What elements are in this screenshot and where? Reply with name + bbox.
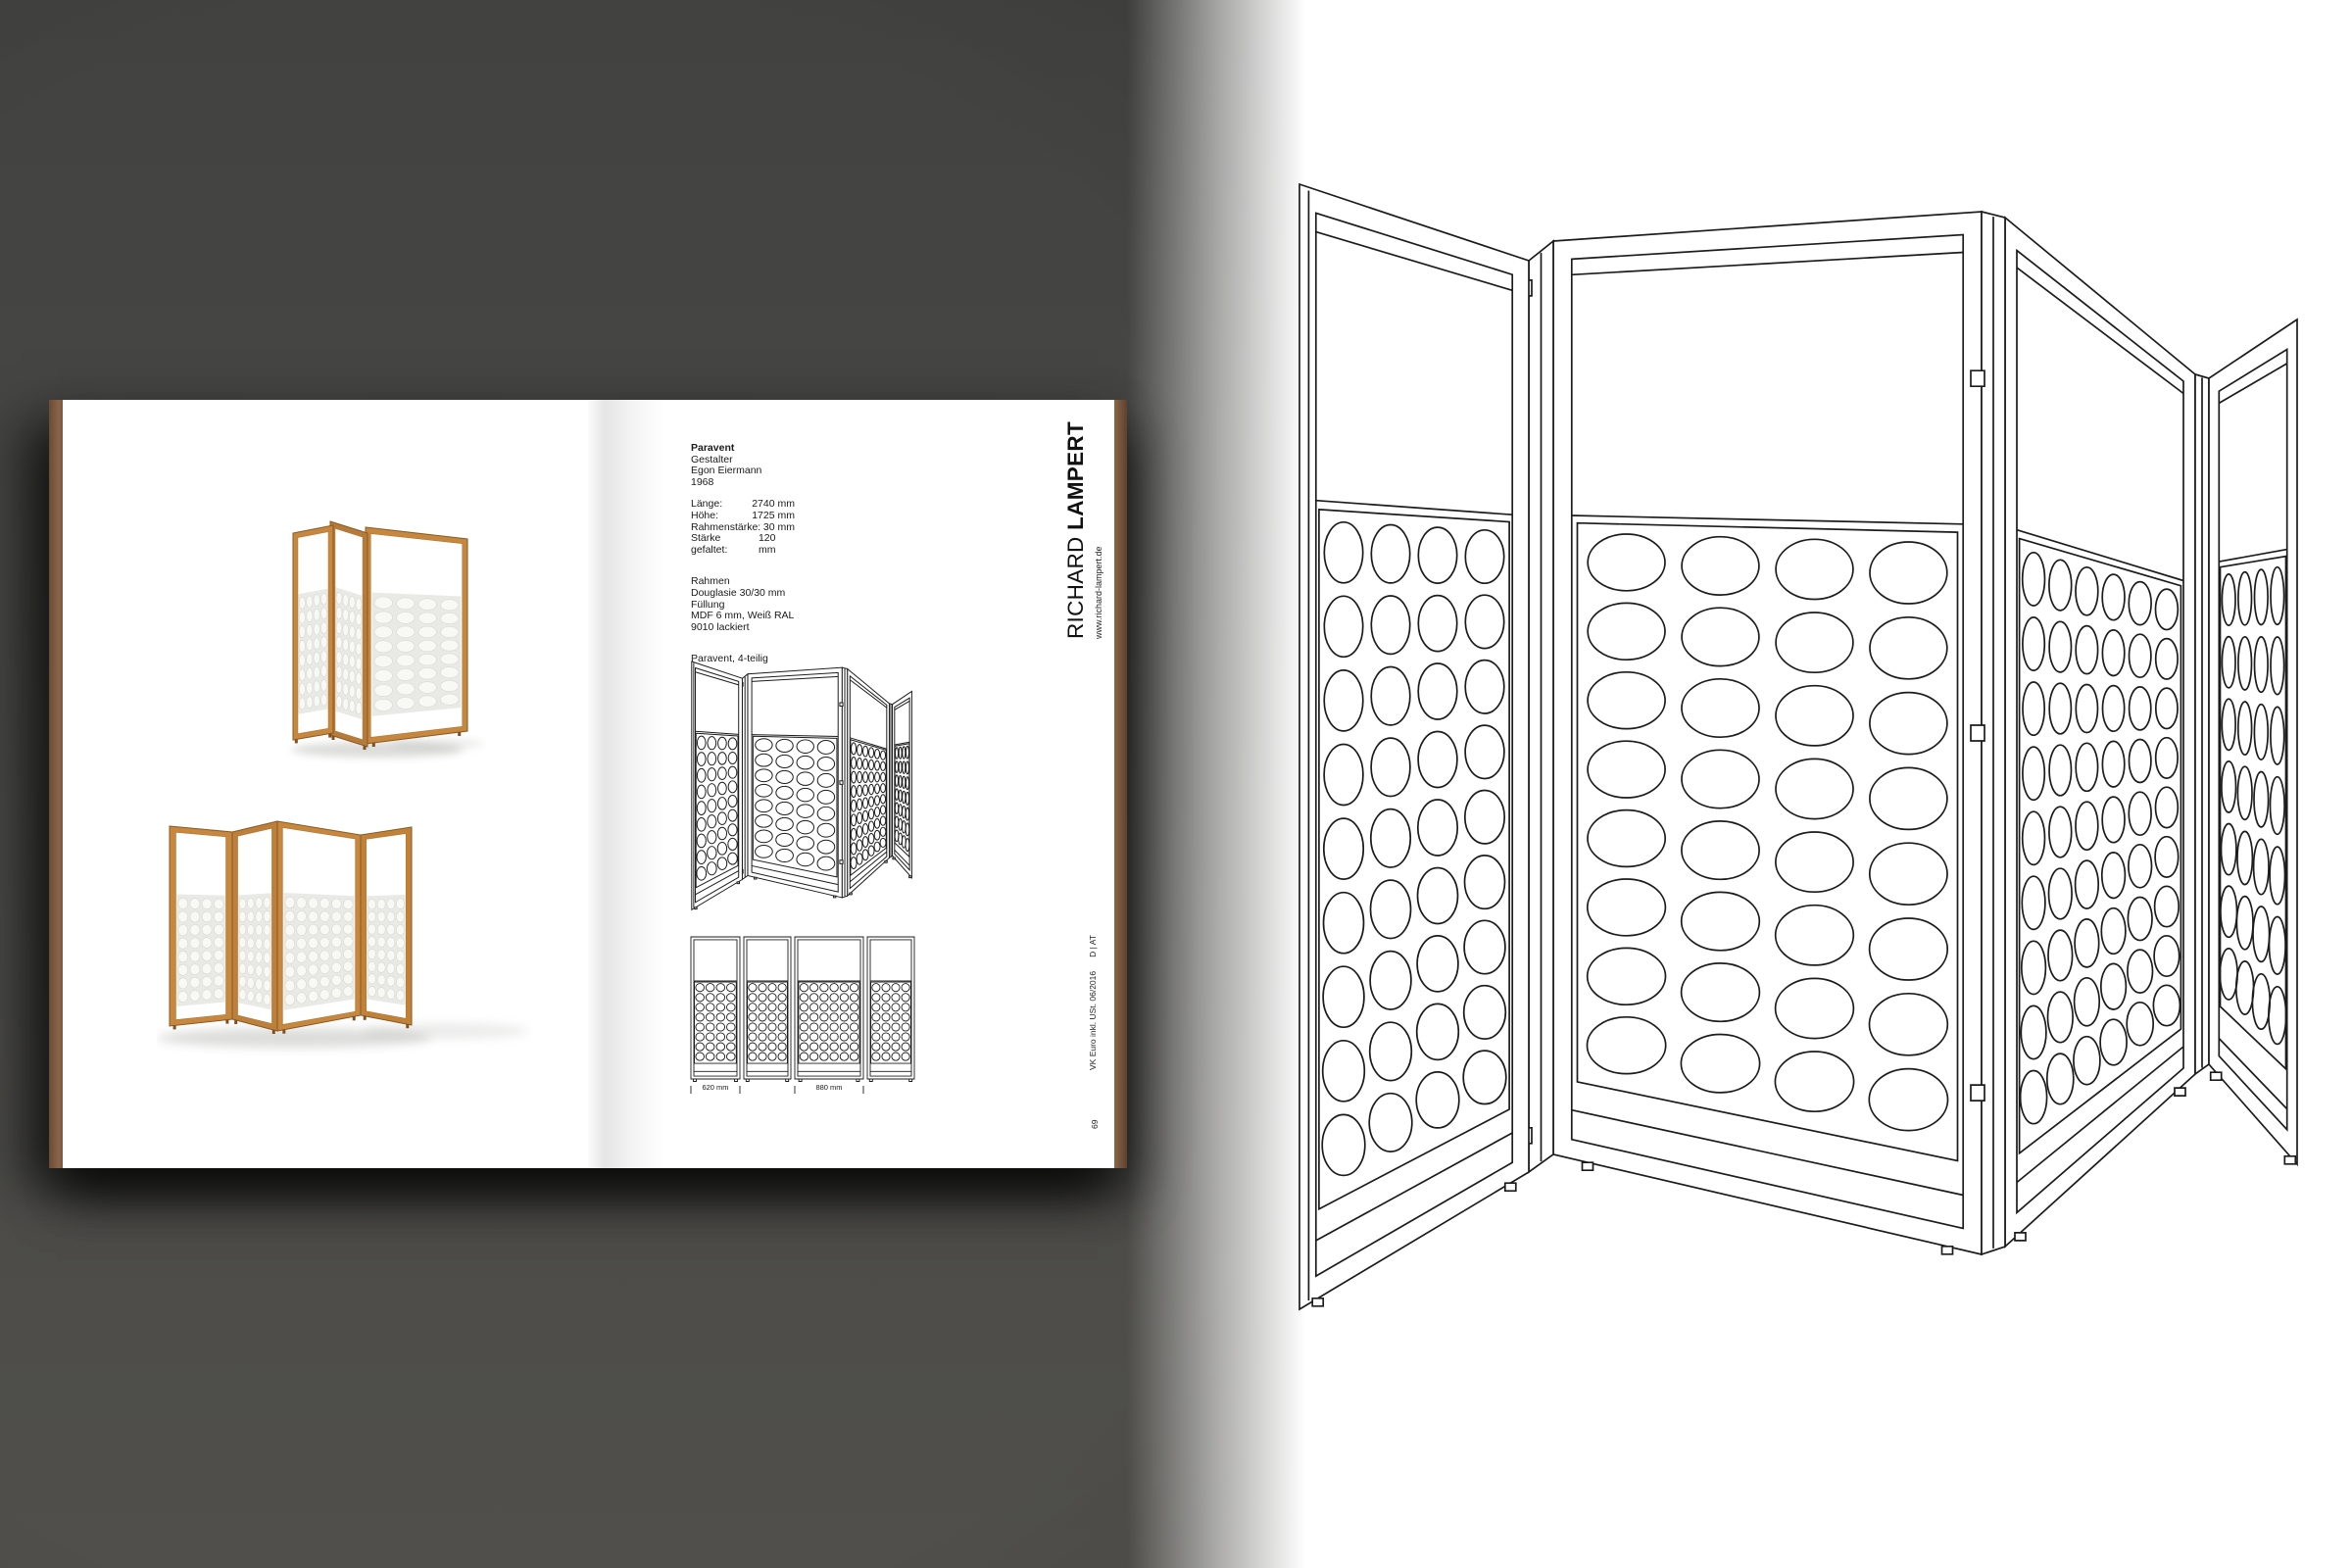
paravent-line-drawing-large bbox=[1274, 118, 2313, 1352]
brand-website: www.richard-lampert.de bbox=[1094, 546, 1103, 639]
material-line: MDF 6 mm, Weiß RAL 9010 lackiert bbox=[691, 611, 795, 633]
spec-label: Stärke gefaltet: bbox=[691, 533, 759, 556]
price-note-text: VK Euro inkl. USt. 06/2016 bbox=[1088, 971, 1098, 1070]
spec-value: 1725 mm bbox=[752, 511, 795, 522]
region-code: D | AT bbox=[1088, 935, 1098, 957]
spec-value: 120 mm bbox=[759, 533, 795, 556]
stage: Paravent Gestalter Egon Eiermann 1968 Lä… bbox=[0, 0, 2352, 1568]
front-elevation-drawing bbox=[681, 929, 926, 1098]
price-note: VK Euro inkl. USt. 06/2016 D | AT bbox=[1088, 935, 1098, 1070]
brand-name-regular: RICHARD bbox=[1063, 536, 1088, 639]
brand-name-bold: LAMPERT bbox=[1063, 421, 1088, 530]
product-name: Paravent bbox=[691, 443, 795, 455]
spec-row-staerke-gefaltet: Stärke gefaltet: 120 mm bbox=[691, 533, 795, 556]
material-line: Douglasie 30/30 mm bbox=[691, 588, 795, 600]
book-cover-edge-right bbox=[1114, 400, 1127, 1168]
catalog-spread: Paravent Gestalter Egon Eiermann 1968 Lä… bbox=[49, 400, 1127, 1168]
dimension-label-880: 880 mm bbox=[795, 1083, 863, 1092]
page-number: 69 bbox=[1090, 1120, 1100, 1129]
brand-logo: RICHARD LAMPERT bbox=[1063, 421, 1089, 639]
spec-row-hoehe: Höhe: 1725 mm bbox=[691, 511, 795, 522]
product-year: 1968 bbox=[691, 477, 795, 489]
photo-paravent-zigzag bbox=[157, 811, 539, 1056]
book-cover-edge-left bbox=[49, 400, 63, 1168]
perspective-drawing-small bbox=[686, 647, 915, 919]
photo-paravent-partially-folded bbox=[279, 508, 485, 767]
dimension-label-620: 620 mm bbox=[691, 1083, 740, 1092]
spec-label: Höhe: bbox=[691, 511, 718, 522]
dimension-table: Länge: 2740 mm Höhe: 1725 mm Rahmenstärk… bbox=[691, 499, 795, 556]
materials-block: Rahmen Douglasie 30/30 mm Füllung MDF 6 … bbox=[691, 576, 795, 633]
product-specs: Paravent Gestalter Egon Eiermann 1968 Lä… bbox=[691, 443, 795, 665]
